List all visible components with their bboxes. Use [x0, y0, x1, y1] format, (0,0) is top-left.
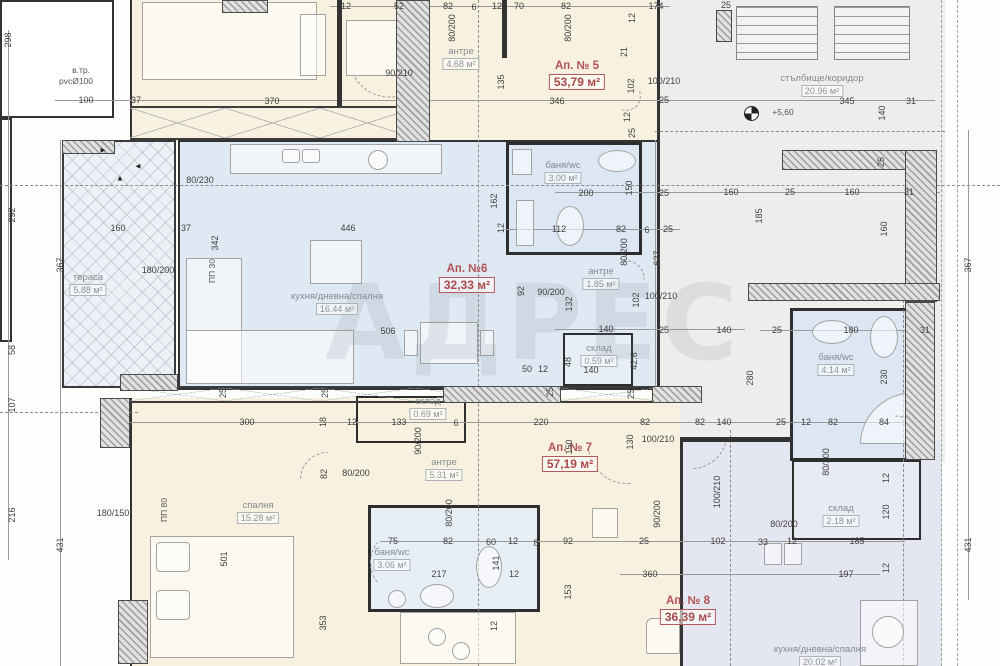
dimension-label: 160: [844, 187, 859, 197]
room-name: склад: [828, 503, 853, 514]
room-label-bath5: баня/wc3.00 м²: [544, 160, 581, 184]
room-label-sklad7: склад0.69 м²: [409, 396, 446, 420]
grid-line: [655, 131, 945, 132]
dimension-label: 370: [264, 96, 279, 106]
annotation-label: pvcØ100: [59, 76, 93, 86]
dimension-label: 300: [239, 417, 254, 427]
dimension-label: 280: [745, 370, 755, 385]
dimension-label: 12: [496, 223, 506, 233]
room-label-antre7: антре5.31 м²: [425, 457, 462, 481]
apartment-number: Ап. №6: [447, 263, 488, 275]
kitchen-counter: [230, 144, 442, 174]
dimension-label: 180/200: [142, 265, 175, 275]
sofa-armrest: [300, 14, 326, 76]
room-area: 4.14 м²: [817, 364, 854, 376]
annotation-label: ПП 30: [207, 259, 217, 283]
apartment-label-ap6: Ап. №632,33 м²: [439, 263, 495, 293]
room-label-bath8: баня/wc4.14 м²: [817, 352, 854, 376]
annotation-label: ►: [99, 146, 107, 155]
grid-line: [0, 185, 1000, 186]
dimension-label: 160: [879, 221, 889, 236]
dimension-label: 150: [624, 180, 634, 195]
dimension-label: 90/200: [413, 427, 423, 455]
dimension-label: 130: [625, 434, 635, 449]
annotation-label: ◄: [134, 162, 142, 171]
apartment-area: 53,79 м²: [549, 74, 605, 90]
dimension-label: 48: [563, 357, 573, 367]
dimension-label: 12: [538, 364, 548, 374]
room-label-bedroom7: спалня15.28 м²: [237, 500, 279, 524]
apartment-number: Ап. № 5: [555, 60, 599, 72]
floor-plan: АДРЕС 1252826127082174122580/20080/20090…: [0, 0, 1000, 666]
partition-wall: [0, 118, 12, 342]
dimension-label: 33: [758, 537, 768, 547]
dimension-label: 25: [659, 325, 669, 335]
dimension-label: 102: [631, 292, 641, 307]
room-area: 1.85 м²: [582, 278, 619, 290]
wall: [443, 386, 561, 403]
room-name: спалня: [242, 500, 273, 511]
dimension-label: 82: [616, 224, 626, 234]
stove-burner: [428, 628, 446, 646]
dimension-label: 185: [849, 536, 864, 546]
dimension-label: 102: [710, 536, 725, 546]
dimension-label: 6: [453, 418, 458, 428]
dimension-label: 82: [640, 417, 650, 427]
room-area: 5.88 м²: [69, 284, 106, 296]
dimension-label: 141: [491, 555, 501, 570]
room-label-terrace: тераса5.88 м²: [69, 272, 106, 296]
wall: [118, 600, 148, 664]
dimension-label: 21: [619, 47, 629, 57]
dimension-label: 25: [639, 536, 649, 546]
room-area: 16.44 м²: [316, 303, 358, 315]
dimension-label: 185: [754, 208, 764, 223]
dimension-label: 8: [533, 538, 538, 548]
dimension-label: 25: [721, 0, 731, 10]
room-label-kitchen6: кухня/дневна/спалня16.44 м²: [291, 291, 383, 315]
dimension-label: 12: [347, 417, 357, 427]
dimension-label: 75: [388, 536, 398, 546]
apartment-area: 36,39 м²: [660, 609, 716, 625]
dim-chain: [555, 192, 940, 193]
annotation-label: +5,60: [772, 107, 794, 117]
wall: [905, 150, 937, 302]
dim-chain: [60, 140, 61, 666]
room-name: антре: [448, 46, 473, 57]
apartment-area: 57,19 м²: [542, 456, 598, 472]
dimension-label: 100/210: [648, 76, 681, 86]
wall: [716, 10, 732, 42]
dimension-label: 230: [879, 369, 889, 384]
dimension-label: 197: [838, 569, 853, 579]
dimension-label: 100/210: [645, 291, 678, 301]
dimension-label: 82: [561, 1, 571, 11]
room-area: 2.18 м²: [822, 515, 859, 527]
room-label-sklad8: склад2.18 м²: [822, 503, 859, 527]
dimension-label: 298: [3, 32, 13, 47]
dimension-label: 367: [55, 257, 65, 272]
kitchen-sink: [302, 149, 320, 163]
dimension-label: 25: [776, 417, 786, 427]
stove-burner: [452, 642, 470, 660]
dimension-label: 153: [563, 584, 573, 599]
room-name: склад: [415, 396, 440, 407]
beam: [130, 106, 396, 140]
wall: [62, 140, 115, 154]
dimension-label: 80/200: [342, 468, 370, 478]
washing-machine: [512, 149, 532, 175]
dimension-label: 31: [920, 325, 930, 335]
dimension-label: 446: [340, 223, 355, 233]
dimension-label: 100/210: [712, 476, 722, 509]
dimension-label: 627: [652, 250, 662, 265]
dim-chain: [55, 100, 935, 101]
wall: [120, 374, 178, 391]
apartment-label-ap5: Ап. № 553,79 м²: [549, 60, 605, 90]
room-area: 5.31 м²: [425, 469, 462, 481]
room-name: баня/wc: [545, 160, 580, 171]
dimension-label: 82: [828, 417, 838, 427]
room-name: кухня/дневна/спалня: [291, 291, 383, 302]
dimension-label: 58: [7, 345, 17, 355]
dimension-label: 112: [552, 224, 566, 234]
room-label-bath7: баня/wc3.06 м²: [373, 547, 410, 571]
dimension-label: 25: [627, 128, 637, 138]
dimension-label: 80/200: [770, 519, 798, 529]
dimension-label: 12: [492, 1, 502, 11]
shower-tray: [516, 200, 534, 246]
stove-burner: [368, 150, 388, 170]
room-label-antre6: антре1.85 м²: [582, 266, 619, 290]
dimension-label: 12: [341, 1, 351, 11]
stair-flight: [736, 6, 818, 60]
room-label-sklad6: склад0.59 м²: [580, 343, 617, 367]
dimension-label: 80/200: [563, 14, 573, 42]
dimension-label: 160: [110, 223, 125, 233]
dimension-label: 367: [963, 257, 973, 272]
dimension-label: 82: [443, 1, 453, 11]
cabinet: [592, 508, 618, 538]
sklad8-room: [792, 460, 921, 540]
dimension-label: 353: [318, 615, 328, 630]
dimension-label: 6: [644, 225, 649, 235]
stair-flight: [834, 6, 910, 60]
apartment-label-ap8: Ап. № 836,39 м²: [660, 595, 716, 625]
room-label-stair: стълбище/коридор20.96 м²: [780, 73, 863, 97]
boundary-line: [957, 0, 958, 666]
dimension-label: 345: [839, 96, 854, 106]
dimension-label: 25: [772, 325, 782, 335]
room-area: 3.00 м²: [544, 172, 581, 184]
dimension-label: 90/200: [537, 287, 565, 297]
dimension-label: 12: [881, 473, 891, 483]
dimension-label: 82: [319, 469, 329, 479]
wall: [748, 283, 940, 301]
room-name: кухня/дневна/спалня: [774, 644, 866, 655]
dimension-label: 25: [218, 388, 228, 398]
dimension-label: 25: [545, 387, 555, 397]
dimension-label: 82: [443, 536, 453, 546]
dimension-label: 135: [496, 74, 506, 89]
room-name: стълбище/коридор: [780, 73, 863, 84]
dimension-label: 12: [881, 563, 891, 573]
wall: [782, 150, 910, 170]
dimension-label: 18: [318, 417, 328, 427]
dimension-label: 80/230: [186, 175, 214, 185]
pillow: [156, 590, 190, 620]
dimension-label: 150: [564, 439, 574, 454]
dimension-label: 216: [7, 507, 17, 522]
room-name: баня/wc: [818, 352, 853, 363]
toilet: [870, 316, 898, 358]
cabinet: [784, 543, 802, 565]
dimension-label: 180: [843, 325, 858, 335]
dimension-label: 80/200: [447, 14, 457, 42]
dimension-label: 37: [181, 223, 191, 233]
partition-wall: [680, 437, 792, 442]
annotation-label: ПП 80: [159, 498, 169, 522]
annotation-label: ▲: [116, 174, 124, 183]
dimension-label: 70: [514, 1, 524, 11]
dimension-label: 60: [486, 537, 496, 547]
wall: [100, 398, 130, 448]
dimension-label: 200: [578, 188, 593, 198]
room-area: 20.96 м²: [801, 85, 843, 97]
room-name: антре: [431, 457, 456, 468]
dimension-label: 100: [78, 95, 93, 105]
dim-chain: [8, 30, 9, 560]
room-area: 15.28 м²: [237, 512, 279, 524]
dimension-label: 25: [663, 224, 673, 234]
partition-wall: [337, 0, 342, 106]
dimension-label: 220: [533, 417, 548, 427]
dimension-label: 140: [716, 417, 731, 427]
dimension-label: 140: [877, 105, 887, 120]
sink: [598, 150, 636, 172]
dimension-label: 90/200: [652, 500, 662, 528]
dimension-label: 501: [219, 551, 229, 566]
room-area: 20.02 м²: [799, 656, 841, 666]
dimension-label: 140: [716, 325, 731, 335]
dimension-label: 52: [394, 1, 404, 11]
dimension-label: 50: [522, 364, 532, 374]
dimension-label: 31: [904, 187, 914, 197]
dimension-label: 160: [723, 187, 738, 197]
dimension-label: 100/210: [642, 434, 675, 444]
dimension-label: 80/200: [619, 238, 629, 266]
dimension-label: 180/150: [97, 508, 130, 518]
dimension-label: 431: [55, 537, 65, 552]
room-area: 0.69 м²: [409, 408, 446, 420]
room-name: тераса: [73, 272, 103, 283]
dimension-label: 217: [431, 569, 446, 579]
elevation-marker-icon: [744, 106, 759, 121]
dimension-label: 25: [320, 388, 330, 398]
dimension-label: 102: [626, 78, 636, 93]
dimension-label: 431: [963, 537, 973, 552]
watermark: АДРЕС: [325, 262, 742, 384]
dimension-label: 92: [516, 286, 526, 296]
dimension-label: 342: [210, 235, 220, 250]
dimension-label: 80/200: [821, 448, 831, 476]
dimension-label: 506: [380, 326, 395, 336]
room-area: 3.06 м²: [373, 559, 410, 571]
dimension-label: 133: [391, 417, 406, 427]
dimension-label: 12: [627, 13, 637, 23]
grid-line: [730, 430, 731, 666]
dimension-label: 82: [695, 417, 705, 427]
dimension-label: 12: [489, 621, 499, 631]
dimension-label: 140: [598, 324, 613, 334]
pedestal-sink: [388, 590, 406, 608]
room-label-antre5: антре4.68 м²: [442, 46, 479, 70]
kitchen-sink: [282, 149, 300, 163]
dimension-label: 84: [879, 417, 889, 427]
dimension-label: 25: [876, 157, 886, 167]
dimension-label: 162: [489, 193, 499, 208]
dimension-label: 12: [508, 536, 518, 546]
dimension-label: 92: [563, 536, 573, 546]
dimension-label: 12: [801, 417, 811, 427]
dimension-label: 6: [471, 2, 476, 12]
dimension-label: 90/210: [385, 68, 413, 78]
wall: [222, 0, 268, 13]
dimension-label: 37: [131, 95, 141, 105]
dimension-label: 132: [564, 296, 574, 311]
pillow: [156, 542, 190, 572]
dimension-label: 346: [549, 96, 564, 106]
dimension-label: 31: [906, 96, 916, 106]
beam: [561, 386, 652, 403]
room-name: антре: [588, 266, 613, 277]
dimension-label: 120: [881, 504, 891, 519]
dimension-label: 174: [648, 1, 663, 11]
room-label-kitchen8: кухня/дневна/спалня20.02 м²: [774, 644, 866, 666]
dimension-label: 12: [787, 536, 797, 546]
dimension-label: 12: [509, 569, 519, 579]
annotation-label: в.тр.: [72, 65, 90, 75]
dimension-label: 80/200: [444, 499, 454, 527]
apartment-area: 32,33 м²: [439, 277, 495, 293]
kitchen-sink: [872, 616, 904, 648]
room-name: склад: [586, 343, 611, 354]
dimension-label: 292: [7, 207, 17, 222]
dim-chain: [968, 130, 969, 600]
dimension-label: 25: [785, 187, 795, 197]
boundary-line: [941, 0, 942, 666]
wall: [652, 386, 702, 403]
dimension-label: 107: [7, 397, 17, 412]
dimension-label: 42.6: [629, 352, 639, 370]
room-area: 4.68 м²: [442, 58, 479, 70]
dimension-label: 25: [659, 188, 669, 198]
apartment-number: Ап. № 8: [666, 595, 710, 607]
dimension-label: 25: [659, 95, 669, 105]
dimension-label: 360: [642, 569, 657, 579]
room-name: баня/wc: [374, 547, 409, 558]
sink: [420, 584, 454, 608]
sofa: [142, 2, 317, 80]
dimension-label: 25: [626, 389, 636, 399]
partition-wall: [502, 0, 507, 58]
dimension-label: 140: [583, 365, 598, 375]
dimension-label: 12: [622, 112, 632, 122]
